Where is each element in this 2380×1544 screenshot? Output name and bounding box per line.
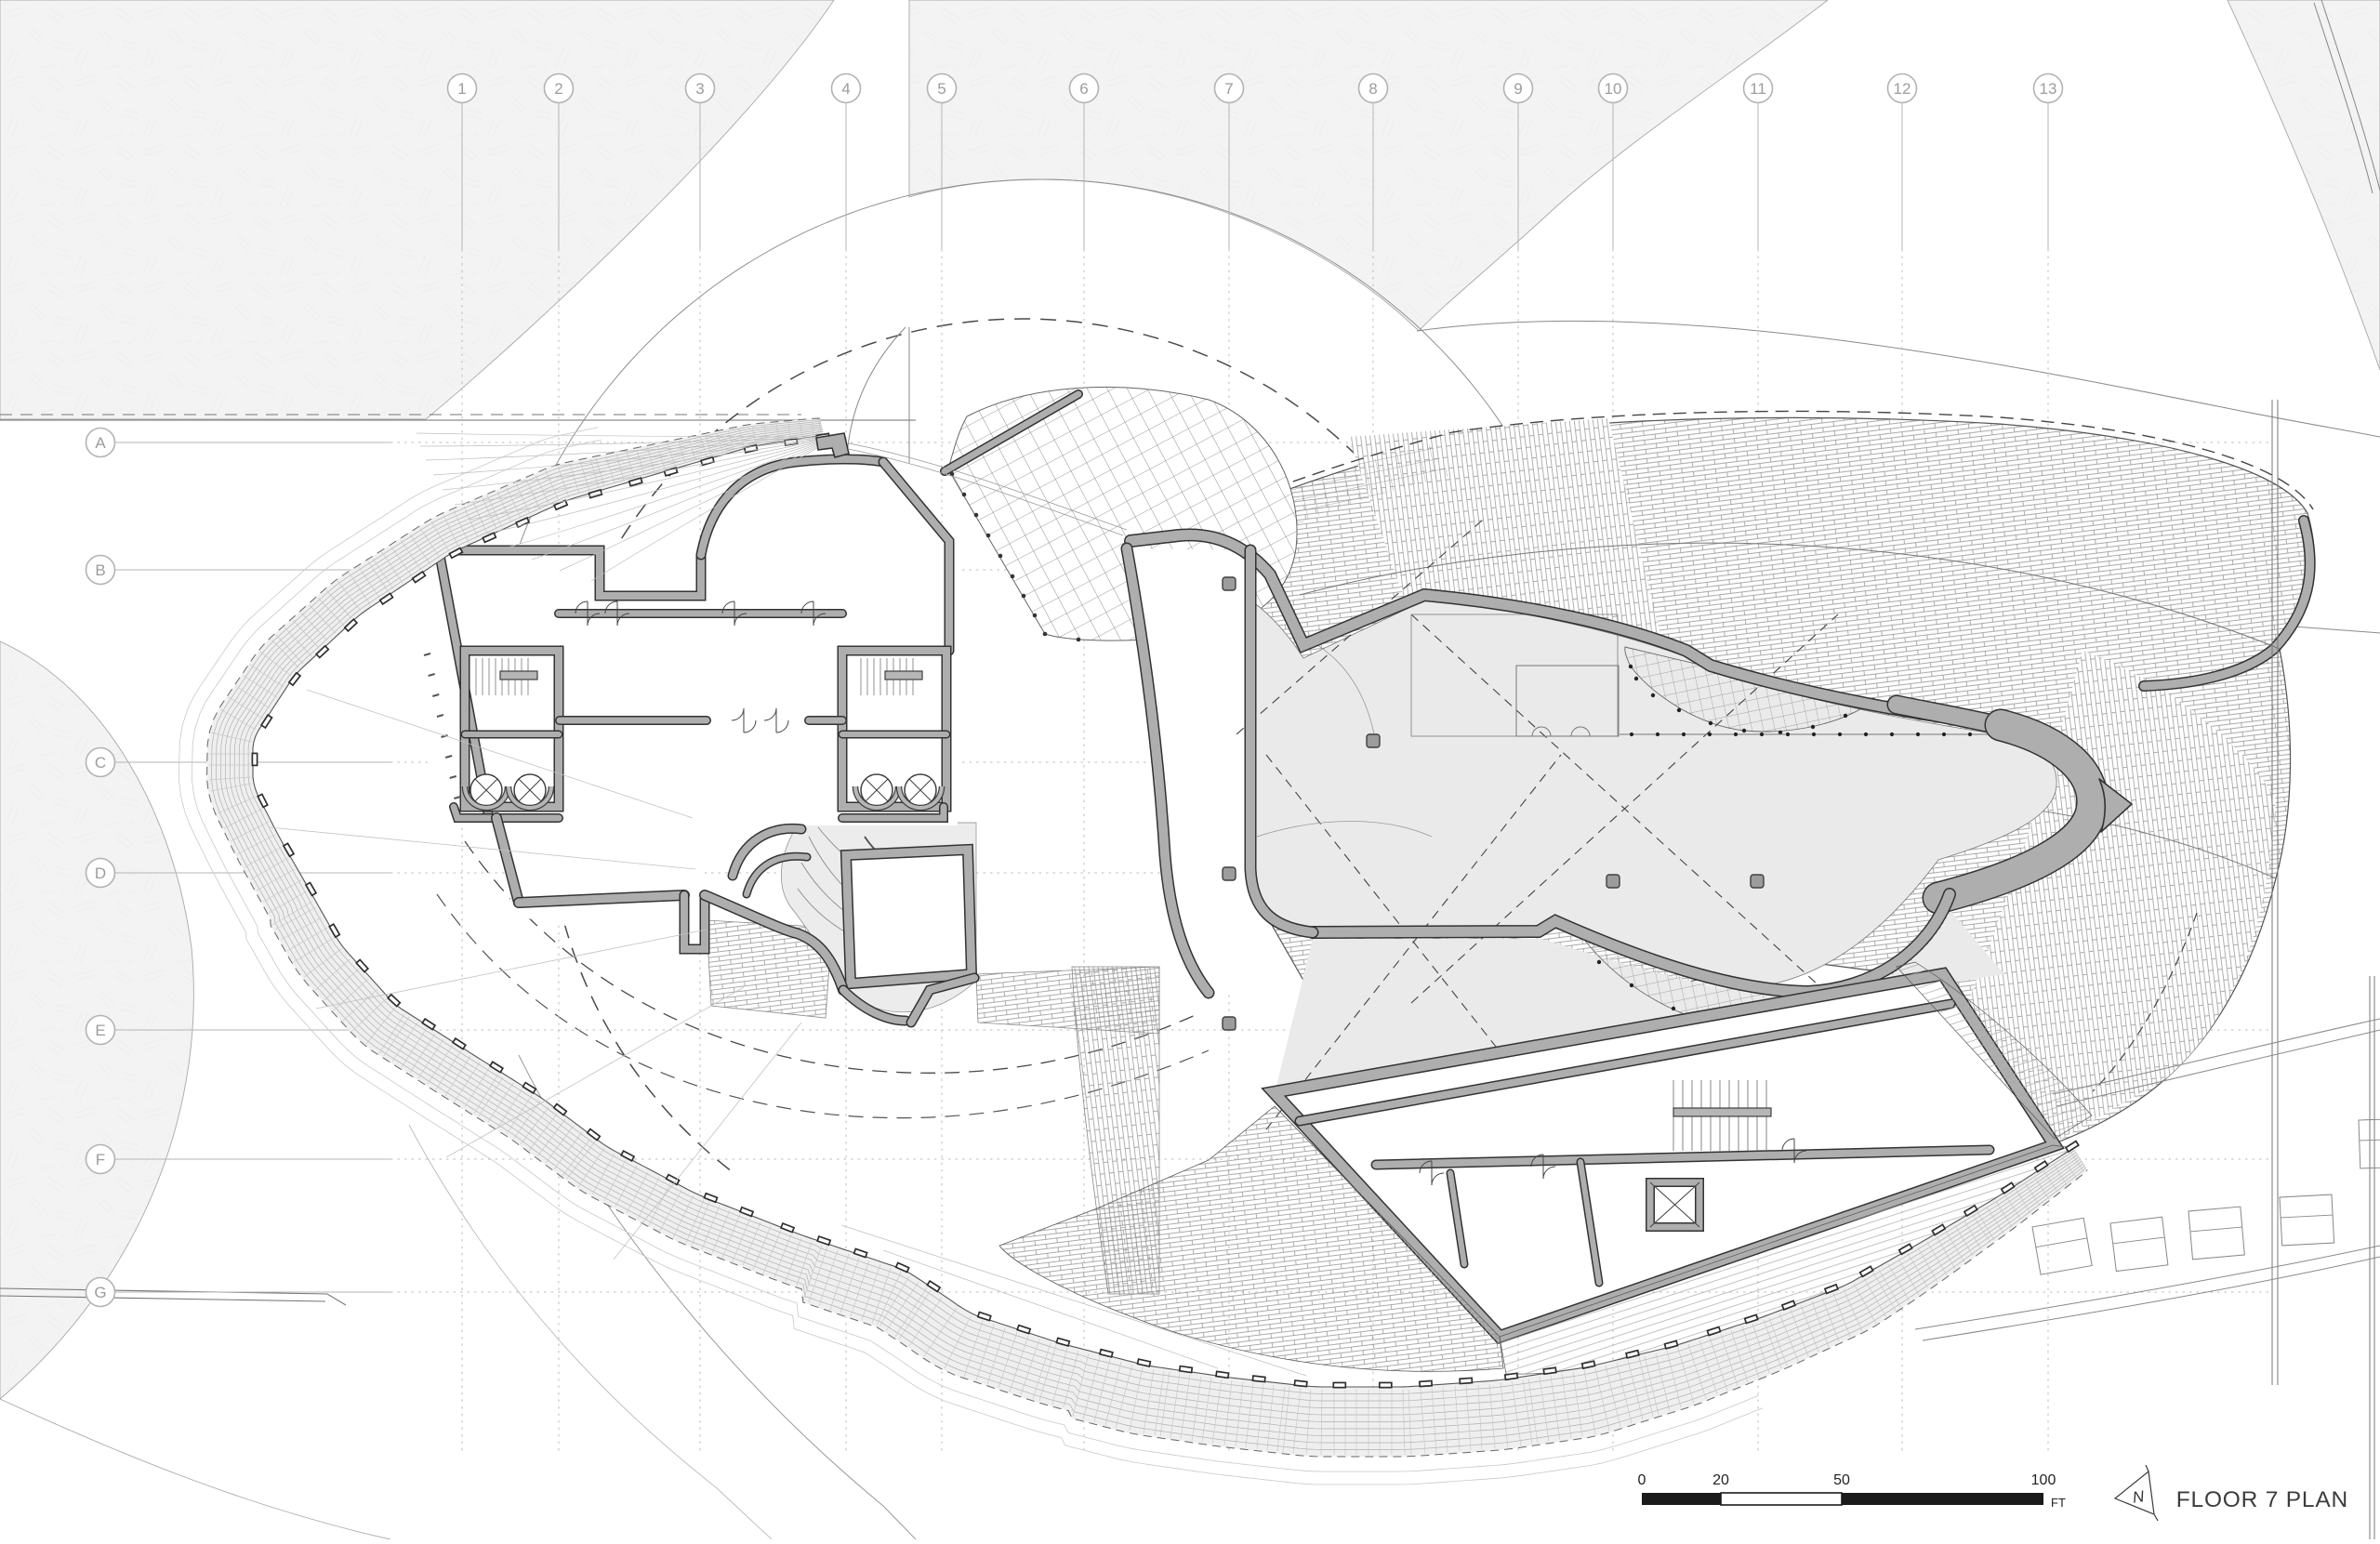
svg-text:12: 12 — [1894, 80, 1911, 98]
svg-text:2: 2 — [554, 80, 562, 98]
svg-text:13: 13 — [2040, 80, 2057, 98]
svg-text:B: B — [95, 561, 105, 579]
svg-text:4: 4 — [841, 80, 850, 98]
svg-text:A: A — [95, 434, 106, 452]
svg-text:D: D — [95, 864, 106, 882]
svg-text:9: 9 — [1514, 80, 1522, 98]
svg-text:5: 5 — [937, 80, 945, 98]
svg-text:11: 11 — [1750, 80, 1766, 98]
svg-text:7: 7 — [1224, 80, 1233, 98]
svg-text:8: 8 — [1368, 80, 1377, 98]
svg-text:FT: FT — [2051, 1496, 2066, 1510]
svg-text:6: 6 — [1079, 80, 1088, 98]
svg-text:0: 0 — [1638, 1472, 1646, 1488]
svg-text:FLOOR 7 PLAN: FLOOR 7 PLAN — [2176, 1487, 2348, 1512]
svg-text:10: 10 — [1605, 80, 1622, 98]
svg-text:1: 1 — [457, 80, 466, 98]
svg-text:20: 20 — [1712, 1472, 1729, 1488]
svg-text:C: C — [95, 754, 106, 772]
svg-text:E: E — [95, 1022, 105, 1039]
svg-text:F: F — [96, 1151, 105, 1168]
svg-text:G: G — [94, 1284, 106, 1301]
svg-text:100: 100 — [2031, 1472, 2056, 1488]
svg-text:50: 50 — [1833, 1472, 1850, 1488]
svg-text:3: 3 — [695, 80, 704, 98]
